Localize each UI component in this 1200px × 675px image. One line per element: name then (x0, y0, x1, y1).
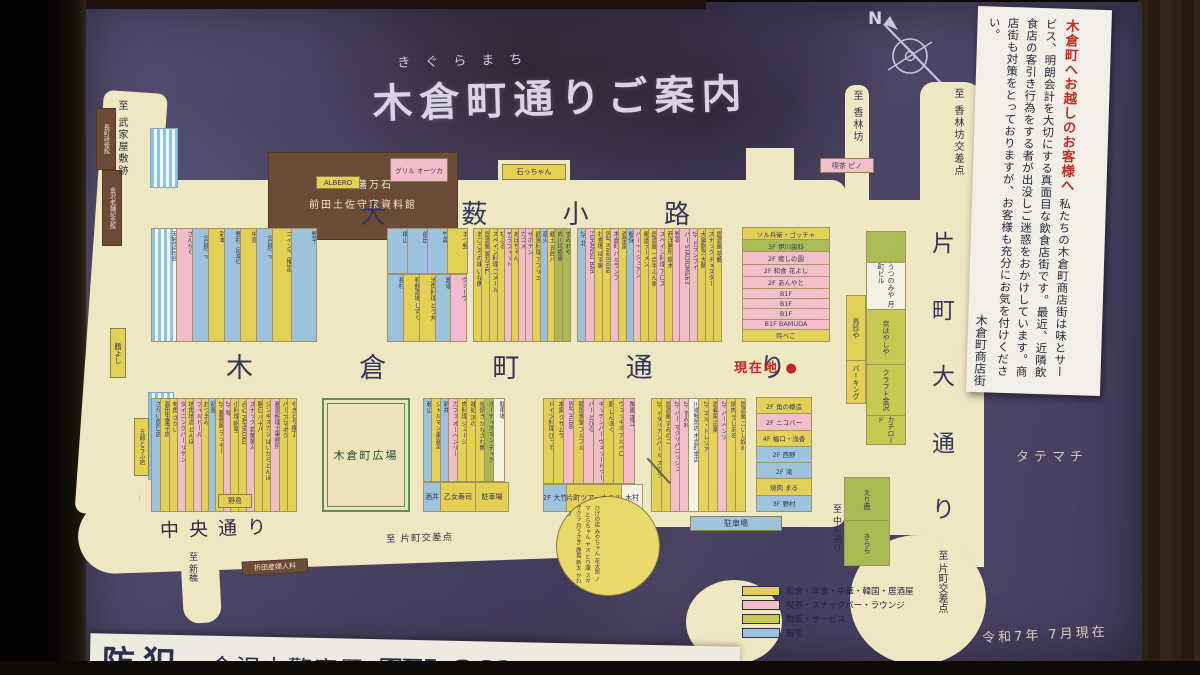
shop-strip: 野村（BMS） (224, 228, 241, 342)
nagamachi-label: 長町研修館 (102, 124, 111, 154)
tag-kissa-pino: 喫茶 ピノ (820, 158, 874, 173)
sign-title: きぐらまち 木倉町通りご案内 (371, 39, 843, 129)
shop-strip: ヴァーヴ (450, 274, 467, 342)
south-block-b: 乾山シャルマン美容室新井カフェ オーヘンリー肉料理 ジョージ味処 浜の炭焼き か… (424, 398, 509, 512)
direction-katamachi-crossing: 至 片町交差点 (934, 550, 949, 613)
legend-swatch (742, 586, 780, 596)
shop-cell: 酒井 (423, 482, 441, 512)
landmark-shinise-kinenkan: 金沢老舗記念館 (102, 170, 122, 246)
legend-label: 喫茶・スナックバー・ラウンジ (786, 599, 905, 611)
shop-cell: 乙女寿司 (440, 482, 476, 512)
street-label-katamachi-odori: 片町大通り (932, 224, 955, 524)
shop-strip: 雲端 (435, 274, 451, 342)
shop-strip: さんかく (176, 228, 193, 342)
north-block-g: ソル兵衛・ゴッチャ3F 伊川歯科2F 癒しの園2F 和食 花よし2F あんやとB… (742, 228, 830, 342)
legend-swatch (742, 600, 780, 610)
shop-strip: まつ野 (447, 228, 468, 274)
shop-strip: 駐車場 (493, 398, 505, 482)
direction-chuo-dori: 至 中央通り (830, 504, 843, 552)
landmark-nagamachi-kenshukan: 長町研修館 (96, 108, 116, 170)
shop-strip: （月極）P (256, 228, 273, 342)
right-column-b: うつのみや 月町ビル京はやしやクラフト金沢カチロード (866, 232, 906, 445)
shop-strip: 竹森 (427, 228, 448, 274)
shop-cell: 駐車場 (475, 482, 509, 512)
legend-row: 物販・サービス (742, 612, 914, 626)
south-block-d: 2F イタリアンバール スカラ居酒屋 すみのこ2F バー マクリバニッシュ2F … (652, 398, 746, 512)
tag-albero: ALBERO (316, 176, 360, 189)
shop-strip: 和飲酒場 しずく (403, 274, 420, 342)
legend-row: 喫茶・スナックバー・ラウンジ (742, 598, 914, 612)
shop-strip: 天野区民会 (151, 228, 177, 342)
north-block-a: 天野区民会さんかく（月極）P彩本野村（BMS）中見（月極）PコインP（推定）野平 (152, 228, 317, 342)
south-block-c: ドイツ料理 ぴって本家 クサムラBar Hubb韓国食堂 プルプルバー とびらキ… (544, 398, 643, 512)
current-location-label: 現在地 (734, 361, 779, 376)
tatemachi-label: タテマチ (1016, 446, 1088, 465)
tag-nojima: 野島 (218, 494, 252, 508)
legend-label: 和食・洋食・中華・韓国・居酒屋 (786, 585, 914, 597)
wood-frame-right (1138, 0, 1200, 675)
bubble-shop-names: ひげの店 みやちゃん 花太郎 ノマ とらちゃん ヤス とり康 スギ ザクラ 月う… (563, 505, 600, 587)
direction-buke-yashiki: 至 武家屋敷跡 (114, 100, 129, 177)
tag-orita-clinic: 折田産婦人科 (242, 558, 309, 575)
shop-box: えり鹿 (844, 477, 890, 521)
shop-strip: 中見 (240, 228, 257, 342)
right-column-a: 鳥珍やパーキング (846, 296, 866, 404)
legend-label: 居宅 (786, 627, 803, 639)
photo-of-street-map-sign: N きぐらまち 木倉町通りご案内 長町研修館 (0, 0, 1200, 675)
legend-swatch (742, 628, 780, 638)
shop-box: 京はやしや (866, 309, 906, 365)
compass-n-label: N (868, 9, 882, 29)
notice-signature: 木倉町商店街 (971, 314, 990, 386)
parking-tag: 駐車場 (690, 516, 782, 531)
shop-strip: 長村 (387, 274, 404, 342)
tag-ishi-chan: 石っちゃん (502, 164, 566, 180)
shop-box: うつのみや 月町ビル (866, 262, 906, 310)
tag-tsuruyoshi: 鶴よし (110, 328, 126, 378)
shop-bubble: ひげの店 みやちゃん 花太郎 ノマ とらちゃん ヤス とり康 スギ ザクラ 月う… (556, 496, 660, 596)
shop-box (866, 231, 906, 263)
shop-row: 吟べこ (742, 329, 830, 342)
shop-strip: 野平 (291, 228, 317, 342)
legend: 和食・洋食・中華・韓国・居酒屋 喫茶・スナックバー・ラウンジ 物販・サービス 居… (742, 584, 914, 640)
date-note: 令和7年 7月現在 (982, 621, 1109, 647)
shop-strip: 池魚料理 とう丸 (419, 274, 436, 342)
north-block-e: 2F 北FURANSU BARわ食場 はす家Bar RivedToile木倉町 … (578, 228, 722, 342)
shop-strip: 彩本 (208, 228, 225, 342)
title-text: 木倉町通りご案内 (372, 58, 843, 129)
shop-row: 2F ニコバー (756, 413, 812, 430)
street-label-kigura-machi-dori: 木倉町通り (226, 346, 786, 385)
shop-box: カチロード (866, 415, 906, 445)
shop-strip: 居酒屋 ごいし奴Ⅱ (735, 398, 746, 512)
compass-rose-icon: N (858, 2, 954, 92)
shop-row: 2F 西野 (756, 446, 812, 463)
shop-strip: 前田 (407, 228, 428, 274)
south-block-d-rows: 2F 角の樽造2F ニコバー4F 幅口・浅香2F 西野2F 滝焼肉 まる3F 野… (756, 398, 812, 512)
street-label-oyabu-koji: 大薮小路 (360, 194, 690, 231)
frame-top (86, 0, 706, 9)
shop-strip: やきとり横丁 (287, 398, 297, 512)
legend-row: 和食・洋食・中華・韓国・居酒屋 (742, 584, 914, 598)
notice-body: 私たちの木倉町商店街は味とサービス、明朗会計を大切にする真面目な飲食店街です。最… (987, 16, 1072, 378)
street-label-chuo-dori: 中央通り (160, 512, 277, 543)
frame-bottom (0, 661, 1200, 675)
shop-box: パーキング (846, 360, 866, 404)
tag-grill-otsuka: グリル オーツカ (390, 158, 448, 182)
bridge-stripes-top (150, 128, 178, 188)
shop-box: 鳥珍や (846, 295, 866, 361)
kiguramachi-plaza: 木倉町広場 (322, 398, 410, 512)
legend-swatch (742, 614, 780, 624)
notice-panel: 木倉町へお越しのお客様へ 私たちの木倉町商店街は味とサービス、明朗会計を大切にす… (966, 6, 1112, 396)
shop-box: クラフト金沢 (866, 364, 906, 416)
shop-strip: 陶園 逢江 (623, 398, 635, 484)
direction-korinbo: 至 香林坊 (849, 90, 864, 143)
shop-row: 2F 角の樽造 (756, 397, 812, 414)
shop-strip: （月極）P (192, 228, 209, 342)
north-block-c: まごころの味 いな穂居酒屋 源左エ門スペイン料理 コメールもふるテラフィットあば… (474, 228, 571, 342)
legend-row: 居宅 (742, 626, 914, 640)
shop-cell: 2F 大竹 (543, 484, 567, 512)
frame-left (0, 0, 88, 675)
shop-strip: コインP（推定） (272, 228, 292, 342)
right-column-c: えり鹿きらら (844, 478, 890, 566)
legend-label: 物販・サービス (786, 613, 846, 625)
direction-katamachi-crossing-2: 至 片町交差点 (386, 529, 453, 545)
shinise-label: 金沢老舗記念館 (108, 187, 117, 229)
shop-row: 3F 野村 (756, 495, 812, 512)
shop-row: 2F 滝 (756, 462, 812, 479)
plaza-label: 木倉町広場 (334, 447, 399, 463)
shop-box: きらら (844, 520, 890, 566)
shop-row: 焼肉 まる (756, 478, 812, 495)
shop-strip: 居酒屋 花鯛 (713, 228, 722, 342)
stub-pino (746, 148, 794, 186)
direction-shinbashi: 至 新橋 (186, 552, 199, 582)
shop-strip: すみれや (562, 228, 571, 342)
shop-strip: 横山 (387, 228, 408, 274)
north-block-b: 横山前田竹森まつ野 長村和飲酒場 しずく池魚料理 とう丸雲端ヴァーヴ (388, 228, 468, 342)
direction-korinbo-crossing: 至 香林坊交差点 (950, 88, 965, 177)
current-location-dot: ● (786, 361, 799, 376)
shop-row: 4F 幅口・浅香 (756, 430, 812, 447)
tag-goro-tofu: 五郎とうふ店 (134, 418, 149, 476)
current-location-marker: 現在地 ● (734, 357, 799, 376)
